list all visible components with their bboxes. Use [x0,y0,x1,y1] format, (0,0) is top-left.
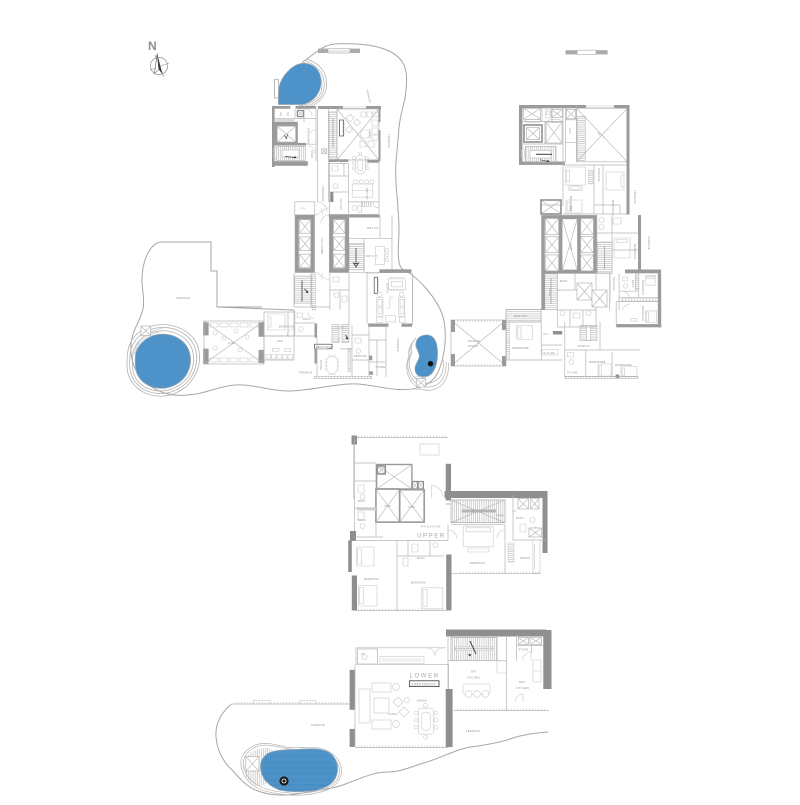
svg-text:MAID: MAID [560,279,567,283]
svg-text:ST.ONE: ST.ONE [567,371,578,375]
svg-text:VOID: VOID [408,505,415,509]
svg-text:BATH: BATH [516,516,524,520]
svg-text:BATH: BATH [631,280,635,288]
svg-text:BATH: BATH [358,499,366,503]
svg-text:TERRACE: TERRACE [299,371,313,375]
svg-text:PLT: PLT [544,332,549,336]
svg-text:BEDROOM: BEDROOM [611,200,615,215]
svg-text:AFT KIT.: AFT KIT. [339,199,343,211]
svg-text:VOID: VOID [384,504,391,508]
svg-text:WARDROBE: WARDROBE [589,360,606,364]
svg-text:DINING: DINING [386,283,390,293]
svg-text:BEDROOM: BEDROOM [279,325,294,329]
svg-text:DINING: DINING [417,699,427,703]
svg-text:TERRACE: TERRACE [365,89,372,103]
svg-text:DNS LOBBY: DNS LOBBY [307,128,311,145]
svg-text:LOWER: LOWER [410,673,440,680]
svg-text:STAIR: STAIR [310,150,314,158]
svg-text:3-BED DUP: 3-BED DUP [342,122,345,135]
svg-text:STAIR: STAIR [496,514,504,518]
svg-text:PASSAGE: PASSAGE [612,277,616,291]
svg-text:KITCHEN: KITCHEN [467,676,480,680]
svg-text:LIFT: LIFT [568,128,572,134]
svg-text:MEETING: MEETING [514,314,527,318]
svg-text:DRY KIT.: DRY KIT. [366,254,378,258]
svg-text:TERRACE: TERRACE [311,723,325,727]
svg-text:TERRACE: TERRACE [647,236,651,250]
svg-text:BEDROOM: BEDROOM [364,577,379,581]
svg-text:PRIVATE: PRIVATE [468,339,480,343]
svg-text:TERRACE: TERRACE [387,134,391,148]
svg-text:TERRACE: TERRACE [466,729,480,733]
svg-text:BATH: BATH [358,518,366,522]
svg-text:CORRIDOR: CORRIDOR [321,186,325,202]
svg-text:LIVING: LIVING [368,129,372,139]
svg-text:SQ: SQ [286,112,290,116]
svg-text:N: N [148,39,157,53]
svg-text:3-BED DUPLEX: 3-BED DUPLEX [411,682,436,686]
svg-text:PR: PR [361,652,365,656]
svg-text:BEDROOM: BEDROOM [470,561,485,565]
svg-text:DRESS: DRESS [520,556,530,560]
svg-text:WARDROBE: WARDROBE [615,363,632,367]
svg-text:BEDROOM: BEDROOM [641,306,645,321]
svg-text:BEDROOM: BEDROOM [641,280,645,295]
svg-text:BEDROOM: BEDROOM [633,244,637,259]
svg-text:GYM: GYM [228,341,235,345]
svg-text:VOID: VOID [569,243,573,250]
svg-text:DRY: DRY [471,670,477,674]
svg-text:UPPER: UPPER [417,533,446,540]
svg-text:DISPLAY: DISPLAY [578,344,590,348]
svg-text:TERRACE: TERRACE [176,296,190,300]
svg-text:TERRACE: TERRACE [633,190,637,204]
svg-text:3-BED DUPLEX: 3-BED DUPLEX [315,346,333,349]
svg-text:STORE: STORE [519,648,529,652]
svg-text:WET: WET [519,680,526,684]
svg-text:PASSAGE: PASSAGE [421,525,441,529]
svg-text:STAIR: STAIR [548,288,552,296]
svg-text:PASSAGE: PASSAGE [597,168,601,182]
svg-text:BATH: BATH [303,317,311,321]
svg-text:BEDROOM: BEDROOM [411,581,426,585]
svg-text:WARDROBE: WARDROBE [512,346,529,350]
svg-text:S.SLIDE: S.SLIDE [544,351,555,355]
svg-text:DINING: DINING [468,344,478,348]
svg-text:SERVICE: SERVICE [354,354,367,358]
svg-text:3-BED DUP: 3-BED DUP [376,279,379,292]
svg-text:WET KIT.: WET KIT. [365,188,369,201]
svg-text:BED: BED [569,206,573,212]
svg-text:DINING: DINING [319,360,323,370]
svg-text:SQ: SQ [279,112,283,116]
svg-text:FAM: FAM [277,339,283,343]
svg-text:BATH: BATH [417,556,425,560]
svg-text:LIVING: LIVING [388,712,398,716]
svg-text:L.L: L.L [301,206,306,210]
svg-text:WET KIT.: WET KIT. [367,226,380,230]
svg-text:STORE: STORE [376,365,386,369]
svg-text:DN: DN [446,502,450,506]
svg-text:LIFT LOBBY: LIFT LOBBY [320,238,324,255]
svg-text:KITCHEN: KITCHEN [516,686,529,690]
svg-text:TERRACE: TERRACE [396,338,400,352]
